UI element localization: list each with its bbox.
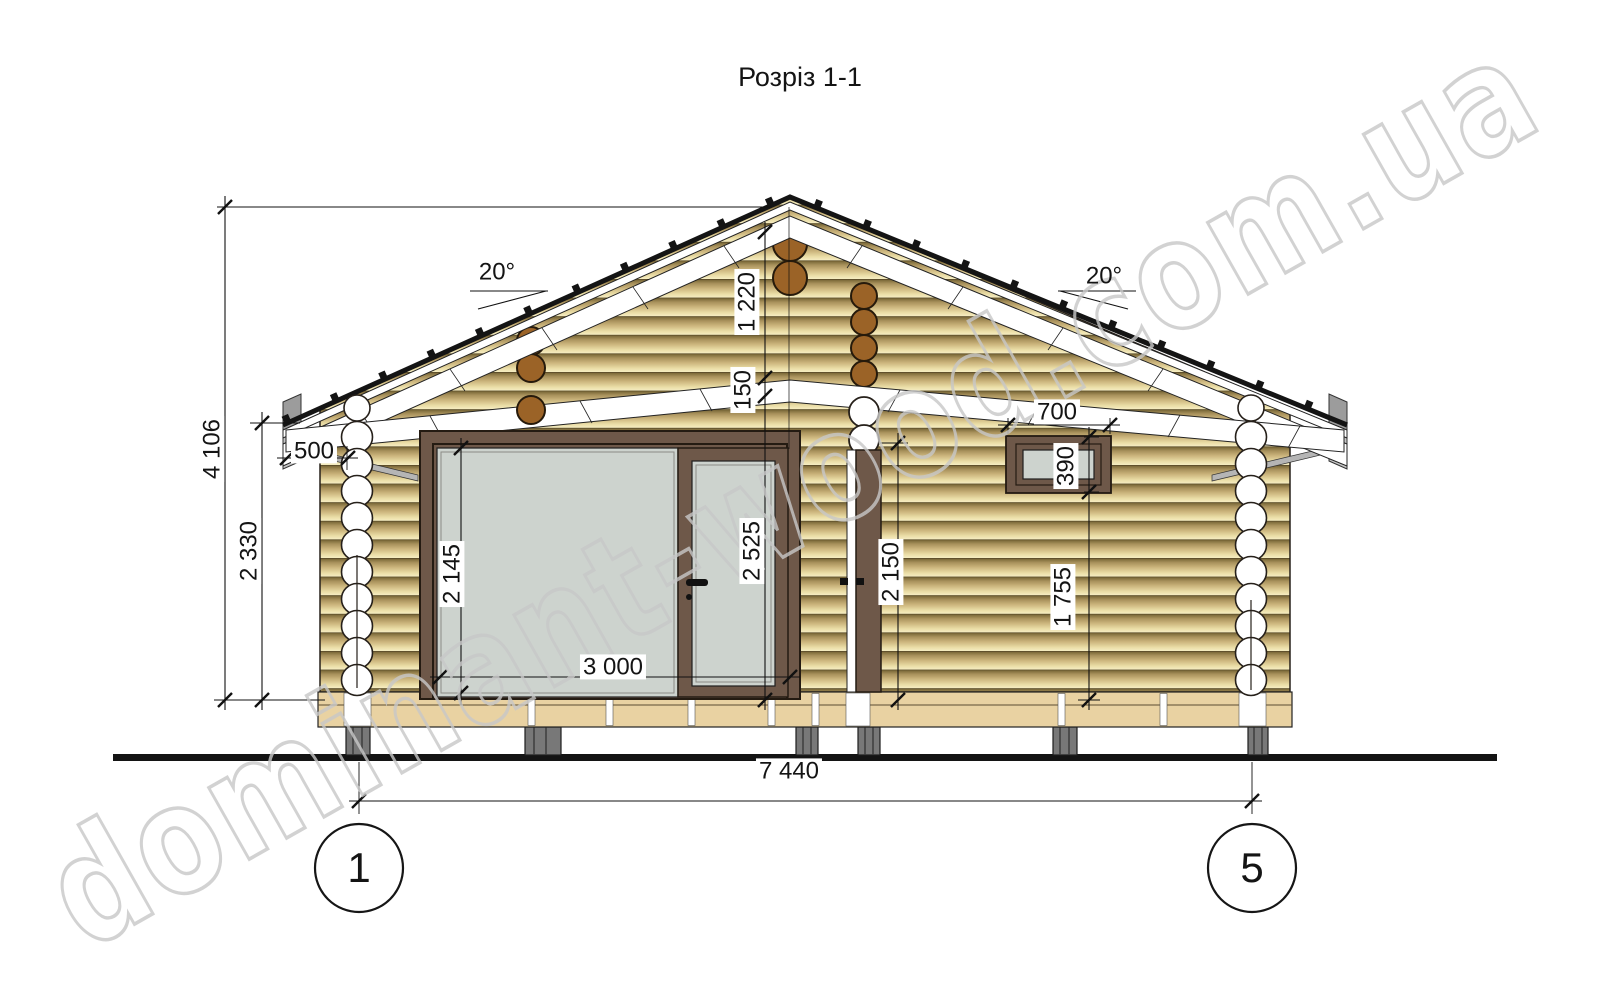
dim-axis-span: 7 440 — [756, 758, 822, 783]
dim-window-sill-height: 1 755 — [1050, 564, 1075, 630]
section-drawing: dominant-wood.com.ua Розріз 1-1 4 106 2 … — [0, 0, 1600, 984]
dim-ridge-to-ceiling: 1 220 — [734, 269, 759, 335]
dim-door-unit-height: 2 525 — [739, 518, 764, 584]
drawing-canvas: dominant-wood.com.ua — [0, 0, 1600, 984]
dim-inner-door-height: 2 150 — [878, 539, 903, 605]
dim-roof-overhang: 500 — [291, 438, 337, 463]
dim-roof-angle-left: 20° — [479, 259, 515, 284]
dim-window-width: 700 — [1034, 399, 1080, 424]
door-handle-inner — [840, 578, 848, 585]
watermark-text: dominant-wood.com.ua — [18, 4, 1566, 983]
corner-log-column-right — [1236, 395, 1267, 696]
drawing-title: Розріз 1-1 — [735, 63, 865, 91]
dim-window-height: 390 — [1053, 443, 1078, 489]
dim-glazing-height: 2 145 — [439, 541, 464, 607]
dim-wall-height: 2 330 — [236, 518, 261, 584]
dim-ceiling-beam: 150 — [730, 367, 755, 413]
axis-label-5: 5 — [1237, 846, 1266, 890]
axis-label-1: 1 — [344, 846, 373, 890]
dim-door-unit-width: 3 000 — [580, 654, 646, 679]
dim-roof-angle-right: 20° — [1086, 263, 1122, 288]
dim-total-height: 4 106 — [199, 416, 224, 482]
purlin-log — [517, 396, 545, 424]
